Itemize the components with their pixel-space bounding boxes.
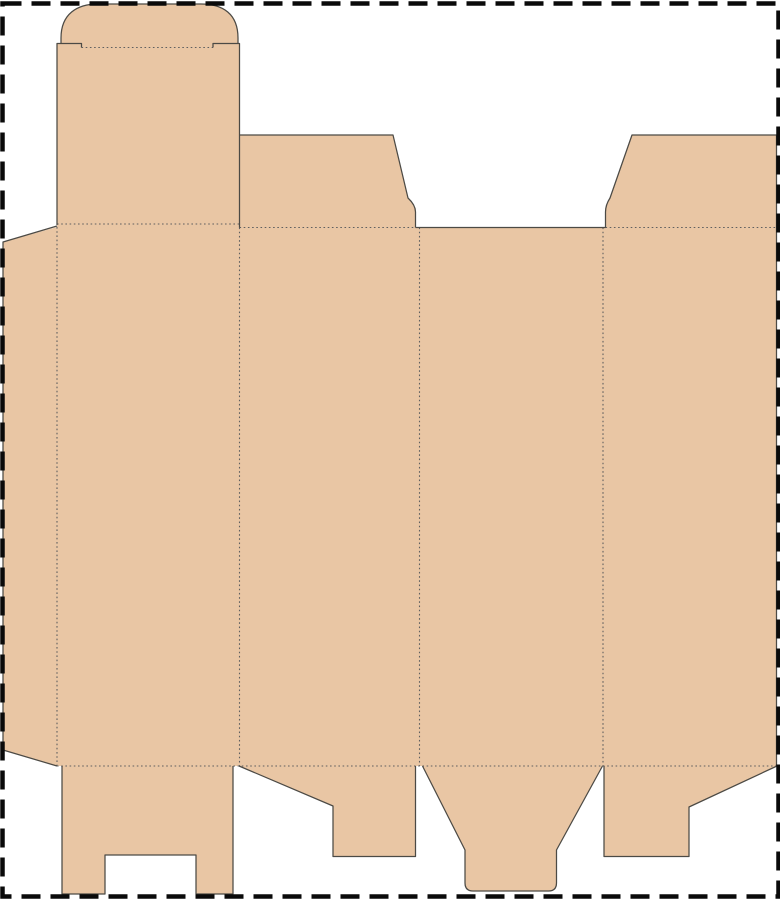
board-fills bbox=[3, 4, 777, 894]
top-dust-flap-right-fill bbox=[606, 135, 777, 228]
dieline-svg bbox=[0, 0, 780, 900]
tuck-panel-fill bbox=[57, 44, 240, 226]
bottom-flap-right-lock-fill bbox=[604, 766, 777, 857]
bottom-flap-tongue-fill bbox=[423, 766, 603, 891]
dieline-page bbox=[0, 0, 780, 900]
tuck-flap-fill bbox=[61, 4, 238, 44]
bottom-flap-slotted-fill bbox=[62, 766, 233, 894]
top-dust-flap-left-fill bbox=[240, 135, 416, 228]
bottom-flap-left-lock-fill bbox=[239, 766, 416, 857]
glue-flap-fill bbox=[3, 227, 57, 766]
main-body-fill bbox=[57, 224, 777, 766]
